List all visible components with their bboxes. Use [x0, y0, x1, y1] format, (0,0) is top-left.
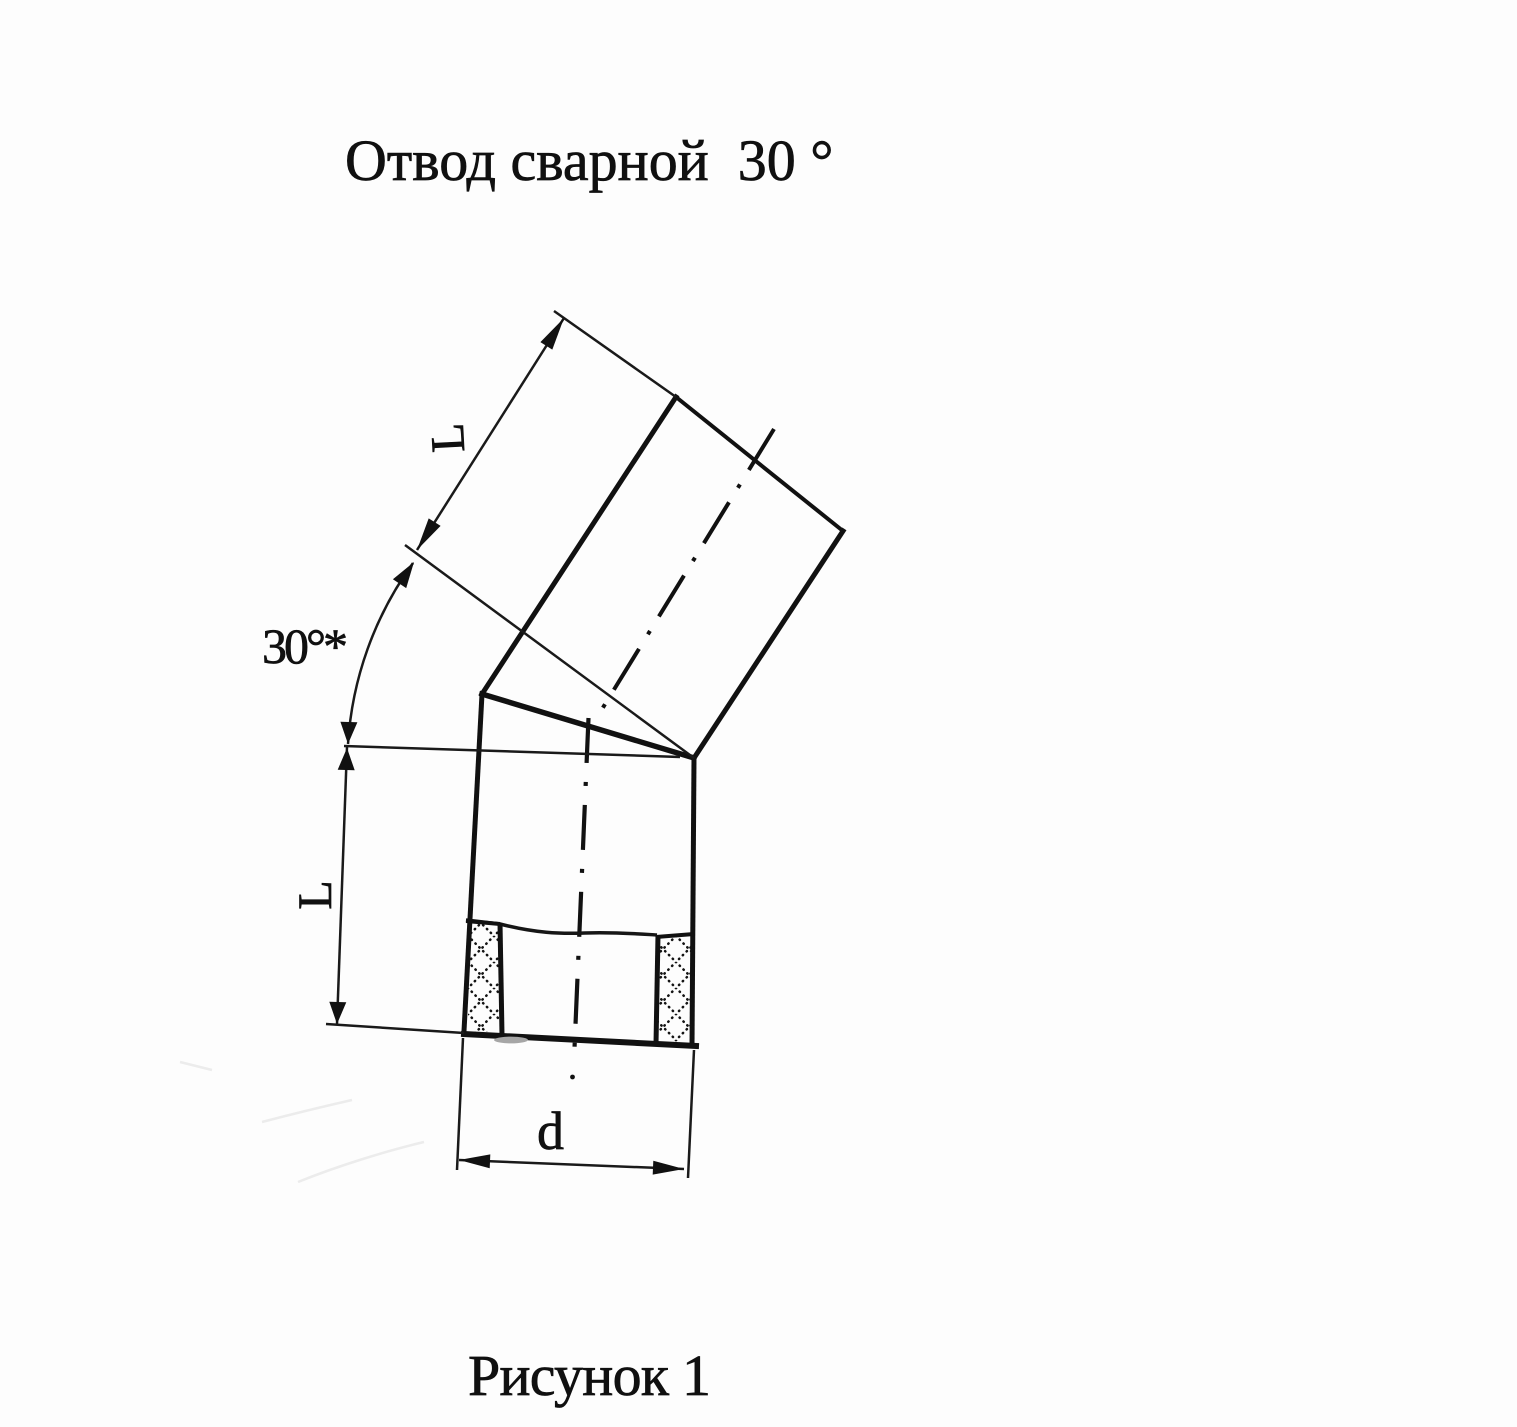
svg-text:L: L — [421, 422, 475, 454]
svg-text:Рисунок 1: Рисунок 1 — [468, 1343, 711, 1408]
svg-text:L: L — [289, 880, 342, 909]
svg-text:d: d — [537, 1101, 564, 1161]
svg-text:Отвод сварной 30 °: Отвод сварной 30 ° — [345, 128, 833, 193]
svg-text:30°*: 30°* — [262, 618, 348, 674]
